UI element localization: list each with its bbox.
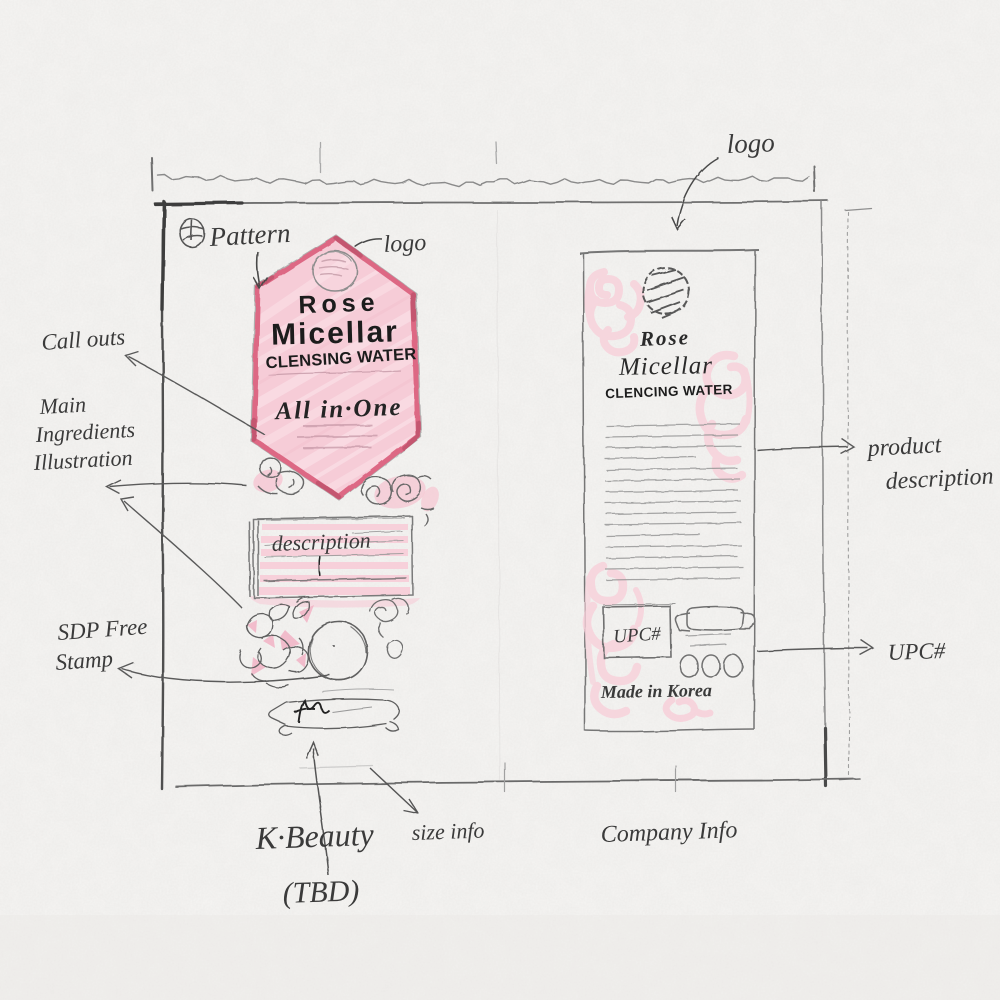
svg-text:Rose: Rose: [298, 288, 380, 319]
svg-text:size info: size info: [411, 817, 485, 845]
svg-text:logo: logo: [726, 127, 775, 159]
svg-text:(TBD): (TBD): [282, 874, 360, 910]
svg-text:UPC#: UPC#: [613, 623, 662, 647]
svg-text:logo: logo: [383, 230, 427, 258]
svg-text:UPC#: UPC#: [887, 638, 946, 665]
svg-text:Rose: Rose: [639, 325, 691, 351]
svg-text:Ingredients: Ingredients: [34, 417, 136, 447]
svg-text:Micellar: Micellar: [618, 352, 714, 381]
svg-text:Stamp: Stamp: [55, 646, 114, 675]
svg-text:Made in Korea: Made in Korea: [600, 680, 712, 702]
svg-text:Pattern: Pattern: [208, 218, 291, 252]
svg-text:Micellar: Micellar: [271, 315, 400, 351]
svg-text:description: description: [271, 528, 371, 556]
svg-text:Company Info: Company Info: [600, 817, 737, 848]
svg-text:All in·One: All in·One: [273, 394, 403, 425]
svg-text:product: product: [865, 432, 943, 462]
svg-text:Main: Main: [38, 392, 87, 419]
svg-text:K·Beauty: K·Beauty: [254, 816, 375, 856]
svg-text:Illustration: Illustration: [32, 445, 133, 475]
